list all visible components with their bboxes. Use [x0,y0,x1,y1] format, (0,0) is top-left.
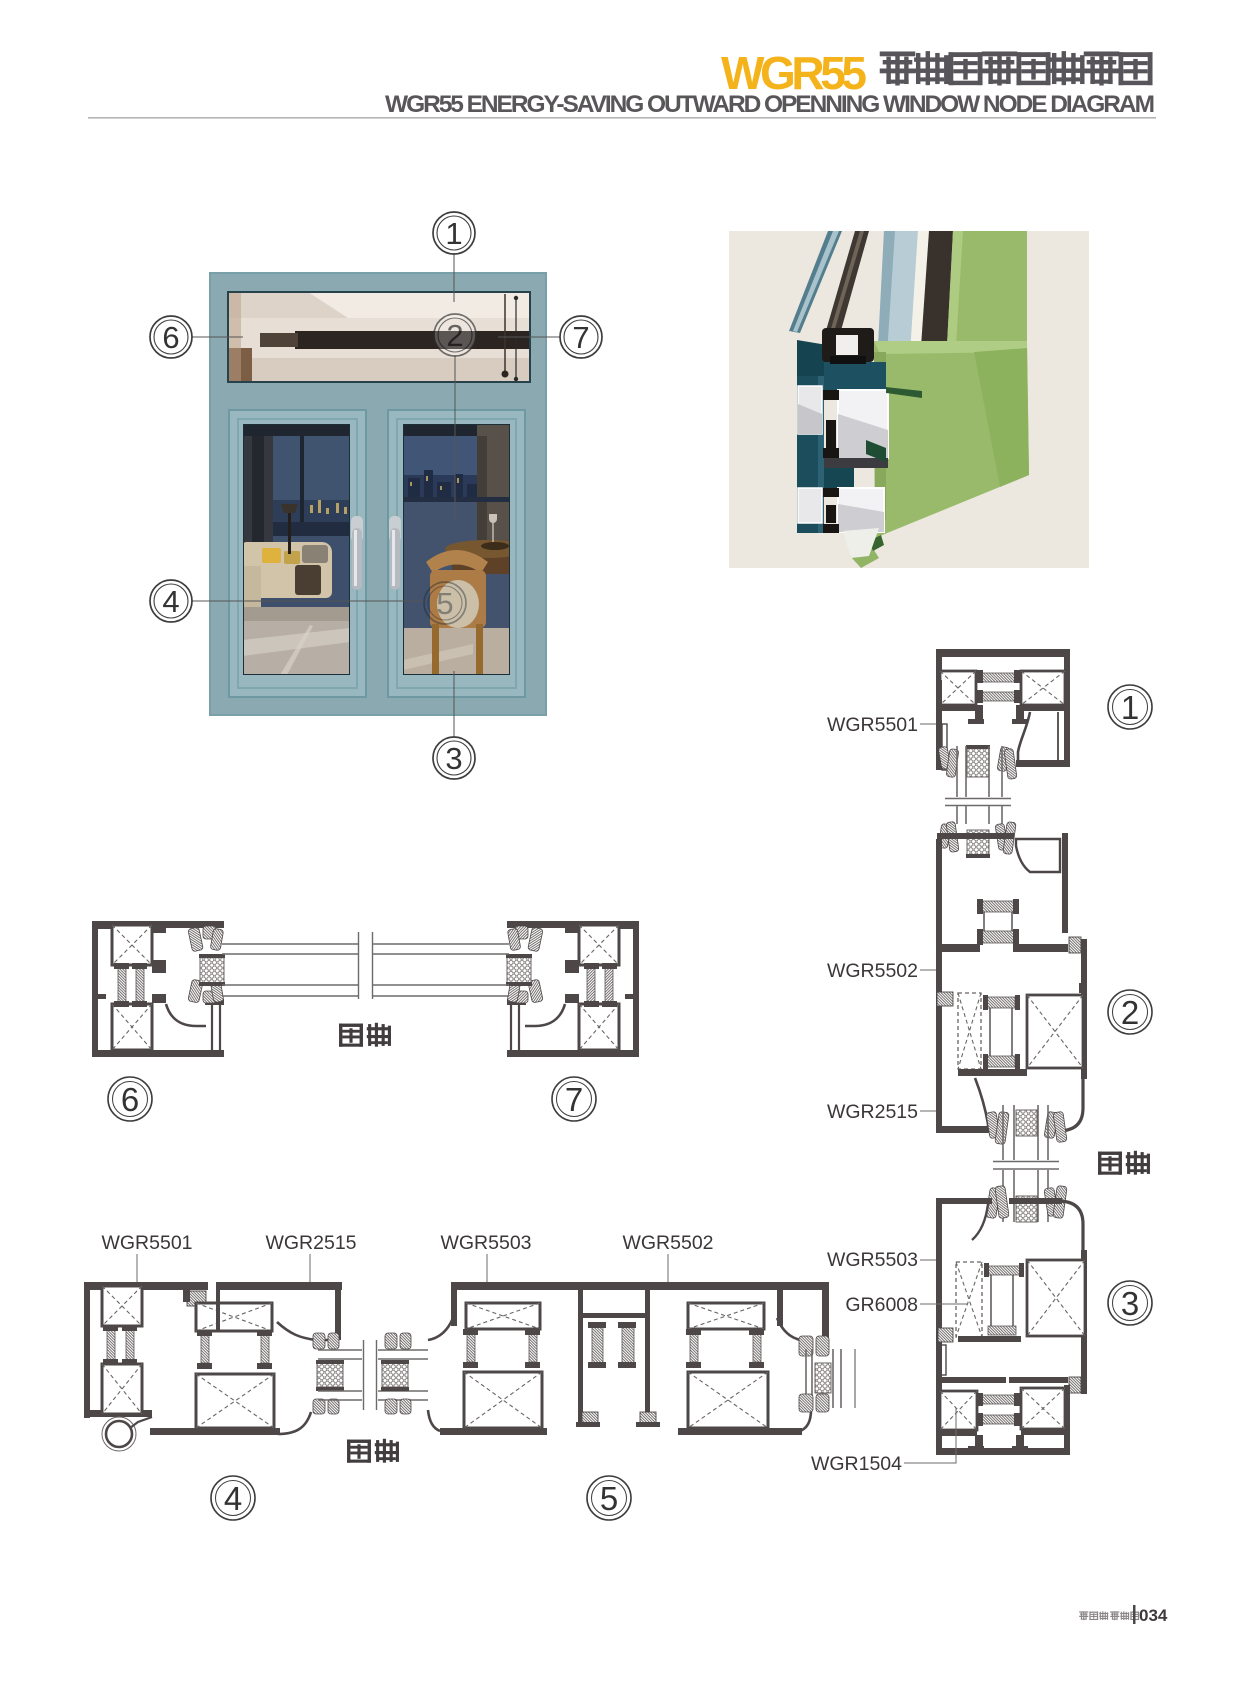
svg-text:2: 2 [1121,994,1139,1031]
svg-text:2: 2 [446,318,463,353]
svg-text:4: 4 [162,584,179,619]
svg-text:WGR5501: WGR5501 [827,714,918,736]
svg-text:WGR5502: WGR5502 [827,960,918,982]
svg-text:WGR5503: WGR5503 [440,1232,531,1254]
svg-text:7: 7 [572,320,589,355]
svg-text:3: 3 [445,741,462,776]
svg-text:5: 5 [600,1480,618,1517]
svg-text:3: 3 [1121,1285,1139,1322]
svg-text:WGR2515: WGR2515 [827,1101,918,1123]
svg-text:4: 4 [224,1480,242,1517]
svg-text:GR6008: GR6008 [845,1294,918,1316]
svg-text:WGR2515: WGR2515 [265,1232,356,1254]
svg-text:6: 6 [121,1081,139,1118]
svg-text:5: 5 [436,586,453,621]
svg-text:7: 7 [565,1081,583,1118]
svg-text:6: 6 [162,320,179,355]
svg-text:034: 034 [1139,1606,1168,1625]
svg-text:WGR55 ENERGY-SAVING OUTWARD OP: WGR55 ENERGY-SAVING OUTWARD OPENNING WIN… [385,91,1155,118]
svg-text:1: 1 [445,216,462,251]
svg-text:WGR5503: WGR5503 [827,1249,918,1271]
svg-text:WGR5502: WGR5502 [622,1232,713,1254]
svg-text:WGR1504: WGR1504 [811,1453,902,1475]
svg-text:WGR5501: WGR5501 [101,1232,192,1254]
svg-text:1: 1 [1121,689,1139,726]
